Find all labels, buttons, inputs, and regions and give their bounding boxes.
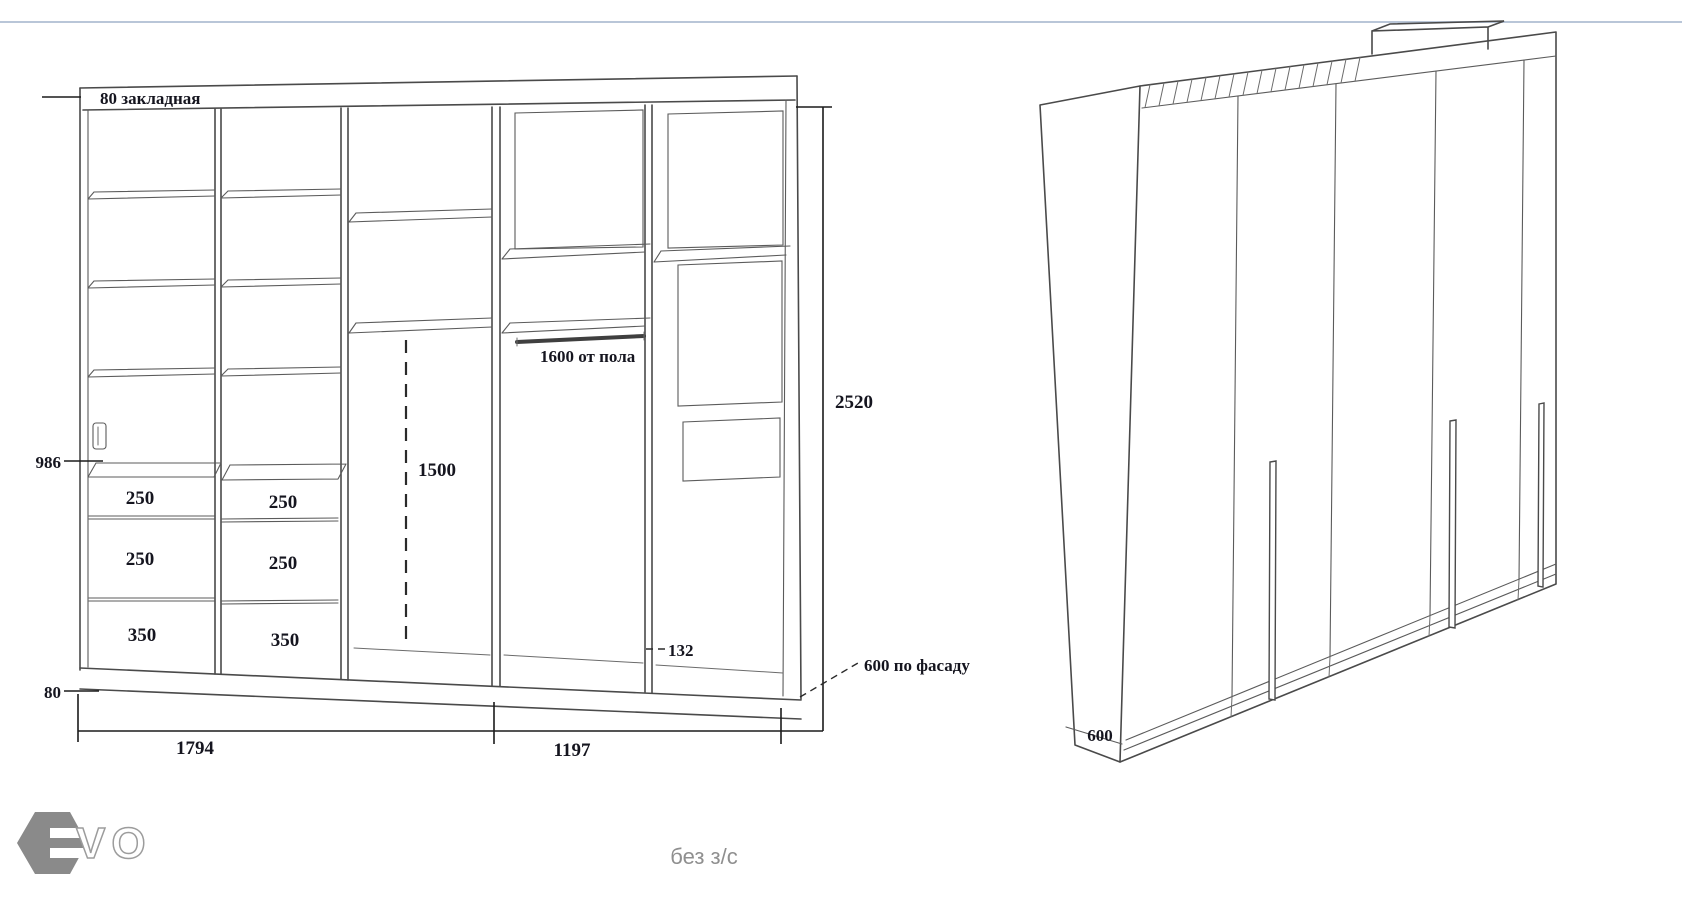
- dim-plinth-height: 80: [44, 683, 99, 702]
- hanging-rod: [517, 336, 644, 342]
- dim-top-closure: 80 закладная: [42, 89, 201, 108]
- front-view-drawing: 2520 1794 1197 80 закладная 986 80 250 2…: [36, 76, 971, 761]
- dim-total-height: 2520: [796, 107, 873, 731]
- drawer-label: 250: [126, 549, 155, 570]
- dim-width-right-label: 1197: [554, 740, 591, 761]
- dim-facade: 600 по фасаду: [800, 656, 970, 697]
- dim-width-left-label: 1794: [176, 738, 215, 759]
- dim-top-closure-label: 80 закладная: [100, 89, 201, 108]
- dim-132-label: 132: [668, 641, 694, 660]
- wardrobe-handle-icon: [1538, 403, 1544, 587]
- dim-1500-label: 1500: [418, 460, 456, 481]
- door-handle-icon: [93, 423, 106, 449]
- drawer-label: 250: [126, 488, 155, 509]
- wardrobe-drawing: 2520 1794 1197 80 закладная 986 80 250 2…: [0, 0, 1682, 900]
- dim-depth-label: 600: [1087, 726, 1113, 745]
- dim-facade-label: 600 по фасаду: [864, 656, 970, 675]
- drawer-label: 250: [269, 492, 298, 513]
- drawing-page: 2520 1794 1197 80 закладная 986 80 250 2…: [0, 0, 1682, 900]
- logo: VO: [17, 812, 152, 874]
- logo-text: VO: [76, 819, 152, 868]
- drawer-label: 350: [128, 625, 157, 646]
- caption-note: без з/с: [670, 844, 738, 869]
- dim-986-label: 986: [36, 453, 62, 472]
- wardrobe-handle-icon: [1449, 420, 1456, 628]
- dim-plinth-label: 80: [44, 683, 61, 702]
- drawer-label: 350: [271, 630, 300, 651]
- iso-view-drawing: 600: [1040, 21, 1556, 762]
- dim-132: 132: [646, 641, 694, 660]
- drawer-label: 250: [269, 553, 298, 574]
- dim-total-height-label: 2520: [835, 392, 873, 413]
- wardrobe-handle-icon: [1269, 461, 1276, 700]
- rod-note-label: 1600 от пола: [540, 347, 636, 366]
